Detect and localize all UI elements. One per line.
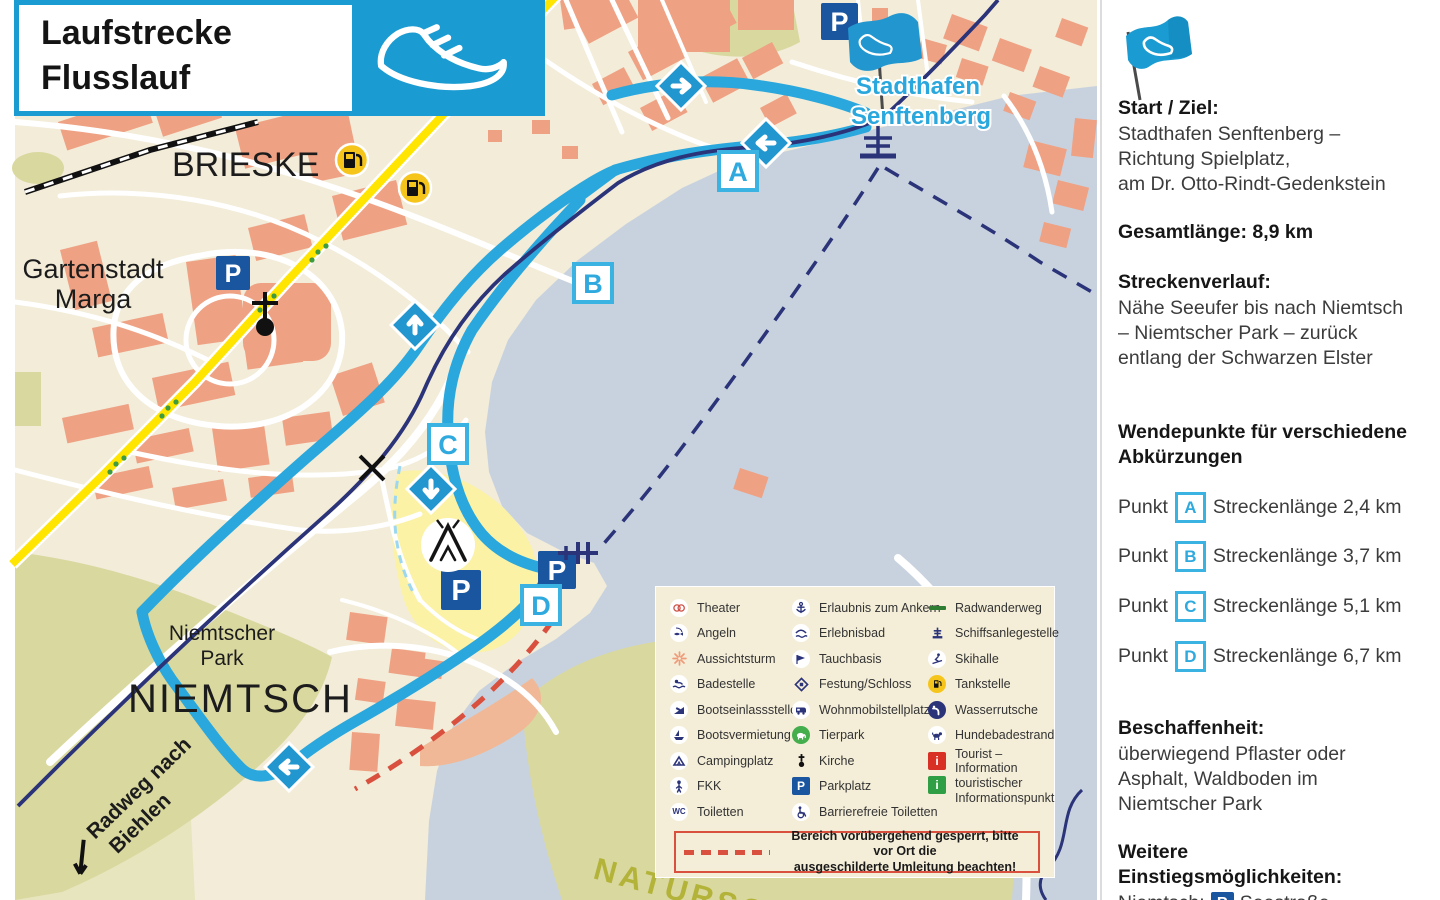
- anchor-icon: [792, 599, 810, 617]
- swimming-icon: [670, 675, 688, 693]
- legend-row: FKK: [670, 774, 797, 800]
- start-ziel-text: Stadthafen Senftenberg – Richtung Spielp…: [1118, 122, 1433, 197]
- parking-icon: P: [216, 256, 250, 290]
- wendepunkte-heading: Wendepunkte für verschiedene Abkürzungen: [1118, 420, 1433, 470]
- legend-row: Schiffsanlegestelle: [928, 621, 1052, 647]
- legend-row: Angeln: [670, 621, 797, 647]
- pier-icon: [928, 624, 946, 642]
- ski-hall-icon: [928, 650, 946, 668]
- title-line-2: Flusslauf: [41, 56, 352, 101]
- legend-row: Festung/Schloss: [792, 672, 941, 698]
- label-marga: Marga: [55, 284, 133, 314]
- beschaffenheit-text: überwiegend Pflaster oder Asphalt, Waldb…: [1118, 742, 1433, 817]
- tourist-info-icon: i: [928, 752, 946, 770]
- parking-icon: P: [1211, 892, 1234, 900]
- route-map-poster: P P P P: [0, 0, 1440, 900]
- marker-d: D: [522, 586, 560, 624]
- legend-row: Radwanderweg: [928, 595, 1052, 621]
- running-shoe-icon: [371, 11, 521, 106]
- rv-icon: [792, 701, 810, 719]
- theater-icon: [670, 599, 688, 617]
- parking-icon: P: [538, 551, 576, 589]
- niemtsch-entry-row: Niemtsch: P Seestraße: [1118, 891, 1433, 900]
- legend-column-3: Radwanderweg Schiffsanlegestelle Skihall…: [928, 595, 1052, 816]
- svg-text:P: P: [548, 555, 567, 586]
- legend-row: Theater: [670, 595, 797, 621]
- legend-row: PParkplatz: [792, 774, 941, 800]
- legend-row: Wohnmobilstellplatz: [792, 697, 941, 723]
- title-line-1: Laufstrecke: [41, 11, 352, 56]
- info-sidebar: Start / Ziel: Stadthafen Senftenberg – R…: [1108, 0, 1440, 900]
- gas-station-icon: [928, 675, 946, 693]
- wheelchair-icon: [792, 803, 810, 821]
- legend-row: Skihalle: [928, 646, 1052, 672]
- svg-text:B: B: [583, 269, 603, 299]
- legend-row: itouristischer Informationspunkt: [928, 774, 1052, 816]
- closure-warning-box: Bereich vorübergehend gesperrt, bitte vo…: [674, 831, 1040, 873]
- tourist-info-point-icon: i: [928, 776, 946, 794]
- label-senftenberg: Senftenberg: [851, 103, 991, 130]
- svg-text:A: A: [728, 157, 748, 187]
- zoo-icon: [792, 726, 810, 744]
- gesamtlaenge-heading: Gesamtlänge: 8,9 km: [1118, 220, 1433, 245]
- label-gartenstadt: Gartenstadt: [22, 254, 164, 284]
- gas-station-icon: [336, 144, 368, 176]
- svg-text:P: P: [225, 260, 242, 288]
- svg-text:P: P: [451, 575, 470, 607]
- running-shoe-badge: [352, 5, 540, 111]
- legend-row: Kirche: [792, 748, 941, 774]
- svg-text:P: P: [830, 7, 848, 37]
- fishing-icon: [670, 624, 688, 642]
- beschaffenheit-heading: Beschaffenheit:: [1118, 716, 1433, 741]
- label-brieske: BRIESKE: [172, 146, 319, 184]
- castle-icon: [792, 675, 810, 693]
- church-icon: [792, 752, 810, 770]
- label-stadthafen: Stadthafen: [856, 73, 980, 100]
- label-niemtscher: Niemtscher: [169, 622, 275, 645]
- streckenverlauf-heading: Streckenverlauf:: [1118, 270, 1433, 295]
- marker-a: A: [719, 152, 757, 190]
- poster-title: Laufstrecke Flusslauf: [19, 5, 352, 111]
- label-park: Park: [200, 647, 244, 670]
- panel-divider: [1100, 0, 1102, 900]
- legend-row: iTourist – Information: [928, 748, 1052, 774]
- legend-column-1: Theater Angeln Aussichtsturm Badestelle …: [670, 595, 797, 825]
- red-dashed-line-icon: [684, 850, 770, 855]
- svg-text:C: C: [438, 430, 458, 460]
- streckenverlauf-text: Nähe Seeufer bis nach Niemtsch – Niemtsc…: [1118, 296, 1433, 371]
- legend-row: Tierpark: [792, 723, 941, 749]
- gas-station-icon: [399, 172, 431, 204]
- map-legend: Theater Angeln Aussichtsturm Badestelle …: [655, 586, 1055, 878]
- water-slide-icon: [928, 701, 946, 719]
- marker-c-badge: C: [1175, 591, 1206, 622]
- start-ziel-heading: Start / Ziel:: [1118, 96, 1433, 121]
- boat-rental-icon: [670, 726, 688, 744]
- label-niemtsch: NIEMTSCH: [128, 677, 353, 721]
- legend-row: Tankstelle: [928, 672, 1052, 698]
- title-box: Laufstrecke Flusslauf: [14, 0, 545, 116]
- lookout-tower-icon: [670, 650, 688, 668]
- start-flag-icon: [1114, 2, 1198, 102]
- marker-b-badge: B: [1175, 541, 1206, 572]
- legend-row: Erlaubnis zum Ankern: [792, 595, 941, 621]
- legend-row: Wasserrutsche: [928, 697, 1052, 723]
- svg-text:D: D: [531, 591, 551, 621]
- bike-path-icon: [928, 599, 946, 617]
- parking-icon: P: [792, 777, 810, 795]
- boat-ramp-icon: [670, 701, 688, 719]
- dog-beach-icon: [928, 726, 946, 744]
- punkt-b-row: Punkt B Streckenlänge 3,7 km: [1118, 541, 1433, 572]
- legend-row: Campingplatz: [670, 748, 797, 774]
- legend-row: Tauchbasis: [792, 646, 941, 672]
- parking-icon: P: [441, 570, 481, 610]
- legend-row: Aussichtsturm: [670, 646, 797, 672]
- diving-icon: [792, 650, 810, 668]
- marker-b: B: [574, 264, 612, 302]
- campground-icon: [670, 752, 688, 770]
- punkt-a-row: Punkt A Streckenlänge 2,4 km: [1118, 492, 1433, 523]
- legend-row: Bootsvermietung: [670, 723, 797, 749]
- water-park-icon: [792, 624, 810, 642]
- punkt-d-row: Punkt D Streckenlänge 6,7 km: [1118, 641, 1433, 672]
- punkt-c-row: Punkt C Streckenlänge 5,1 km: [1118, 591, 1433, 622]
- closure-warning-text: Bereich vorübergehend gesperrt, bitte vo…: [780, 829, 1030, 876]
- legend-row: Bootseinlassstelle: [670, 697, 797, 723]
- marker-d-badge: D: [1175, 641, 1206, 672]
- person-icon: [670, 777, 688, 795]
- campground-icon: [421, 518, 475, 572]
- weitere-heading: Weitere Einstiegsmöglichkeiten:: [1118, 840, 1433, 890]
- legend-row: Hundebadestrand: [928, 723, 1052, 749]
- legend-row: Barrierefreie Toiletten: [792, 799, 941, 825]
- legend-row: WCToiletten: [670, 799, 797, 825]
- marker-c: C: [429, 425, 467, 463]
- legend-row: Erlebnisbad: [792, 621, 941, 647]
- legend-row: Badestelle: [670, 672, 797, 698]
- legend-column-2: Erlaubnis zum Ankern Erlebnisbad Tauchba…: [792, 595, 941, 825]
- marker-a-badge: A: [1175, 492, 1206, 523]
- wc-icon: WC: [670, 803, 688, 821]
